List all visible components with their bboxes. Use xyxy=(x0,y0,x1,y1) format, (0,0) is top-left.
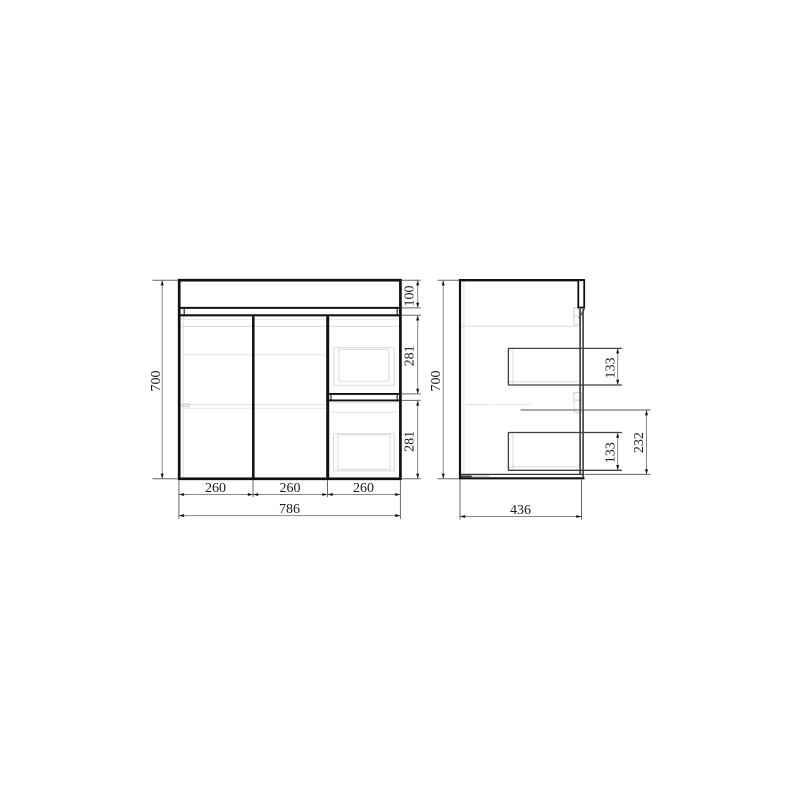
svg-text:281: 281 xyxy=(403,431,418,452)
svg-text:133: 133 xyxy=(603,442,618,463)
svg-text:700: 700 xyxy=(429,371,444,392)
svg-text:100: 100 xyxy=(403,286,418,307)
svg-text:436: 436 xyxy=(510,503,531,518)
svg-text:232: 232 xyxy=(632,432,647,453)
svg-text:133: 133 xyxy=(603,358,618,379)
svg-text:786: 786 xyxy=(279,502,300,517)
svg-text:700: 700 xyxy=(149,371,164,392)
svg-text:260: 260 xyxy=(353,481,374,496)
svg-text:260: 260 xyxy=(205,481,226,496)
svg-text:281: 281 xyxy=(403,345,418,366)
svg-text:260: 260 xyxy=(280,481,301,496)
